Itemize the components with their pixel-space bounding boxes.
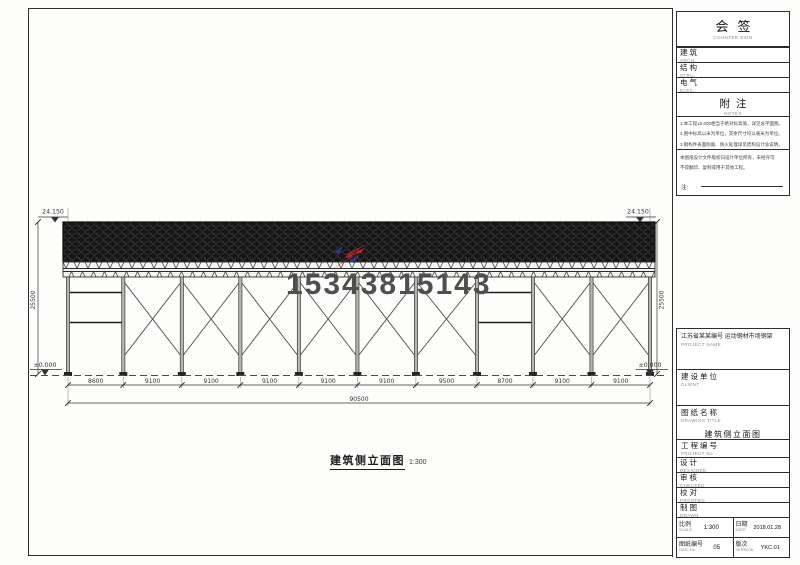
drawing-title: 建筑侧立面图 bbox=[330, 455, 405, 470]
discipline-label: 建筑 bbox=[680, 49, 786, 58]
date-cell: 日期 DATE 2018.01.28 bbox=[733, 518, 790, 537]
role-row-drawn: 制图 DRAWN bbox=[676, 502, 790, 518]
svg-text:25500: 25500 bbox=[659, 290, 666, 309]
column bbox=[122, 277, 125, 374]
svg-text:9100: 9100 bbox=[203, 378, 218, 385]
drawing-scale: 1:300 bbox=[409, 459, 427, 466]
elevation-marker-icon bbox=[51, 217, 59, 223]
note-label: 注: bbox=[681, 183, 688, 191]
scale-sublabel: SCALE bbox=[679, 528, 692, 532]
notes-list-box: 1.本工程±0.000相当于绝对标高值，详见总平面图。 2.图中标高以米为单位，… bbox=[676, 116, 790, 150]
svg-text:9100: 9100 bbox=[145, 378, 160, 385]
project-name-sublabel: PROJECT NAME bbox=[681, 342, 785, 347]
note-line: 2.图中标高以米为单位，其余尺寸均以毫米为单位。 bbox=[680, 129, 786, 139]
svg-text:9500: 9500 bbox=[439, 378, 454, 385]
note-line: 本图纸设计文件版权归设计单位所有，未经许可 bbox=[680, 153, 786, 163]
svg-text:±0.000: ±0.000 bbox=[639, 362, 662, 369]
svg-text:9100: 9100 bbox=[379, 378, 394, 385]
svg-text:24.150: 24.150 bbox=[627, 209, 649, 216]
svg-text:9100: 9100 bbox=[555, 378, 570, 385]
discipline-label: 结构 bbox=[680, 64, 786, 73]
client-sublabel: CLIENT bbox=[681, 382, 785, 387]
svg-text:±0.000: ±0.000 bbox=[34, 362, 57, 369]
dwgno-sublabel: DWG No. bbox=[679, 548, 703, 552]
role-row-proofed: 校对 PROOFED bbox=[676, 487, 790, 503]
scale-date-row: 比例 SCALE 1:300 日期 DATE 2018.01.28 bbox=[676, 517, 790, 538]
notes-header-box: 附注 NOTES bbox=[676, 92, 790, 117]
role-row-checked: 审核 CHECKED bbox=[676, 472, 790, 488]
sign-subtitle: COUNTER SIGN bbox=[677, 35, 789, 40]
svg-text:8600: 8600 bbox=[88, 378, 103, 385]
note-line: 1.本工程±0.000相当于绝对标高值，详见总平面图。 bbox=[680, 119, 786, 129]
drawing-title-box: 图纸名称 DRAWING TITLE 建筑侧立面图 bbox=[676, 405, 790, 440]
drawing-caption: 建筑侧立面图1:300 bbox=[330, 451, 427, 469]
client-box: 建设单位 CLIENT bbox=[676, 369, 790, 406]
sign-box: 会签 COUNTER SIGN bbox=[676, 11, 790, 47]
date-value: 2018.01.28 bbox=[748, 525, 787, 531]
column bbox=[66, 277, 69, 374]
project-name: 江苏省某某编号 运动钢材市场钢架 bbox=[681, 333, 785, 342]
project-number-sublabel: PROJECT No. bbox=[681, 451, 785, 456]
role-label: 校对 bbox=[680, 489, 786, 498]
copyright-box: 本图纸设计文件版权归设计单位所有，未经许可 不得翻印、复制或用于其他工程。 注: bbox=[676, 149, 790, 196]
svg-text:9100: 9100 bbox=[262, 378, 277, 385]
role-label: 设计 bbox=[680, 459, 786, 468]
role-label: 审核 bbox=[680, 474, 786, 483]
client-label: 建设单位 bbox=[681, 373, 785, 382]
discipline-label: 电气 bbox=[680, 79, 786, 88]
drawing-title-sublabel: DRAWING TITLE bbox=[681, 418, 785, 423]
note-line: 不得翻印、复制或用于其他工程。 bbox=[680, 163, 786, 173]
discipline-row-arch: 建筑 ARCH. bbox=[676, 47, 790, 63]
discipline-row-elec: 电气 ELEC. bbox=[676, 77, 790, 93]
scanned-cad-sheet: { "watermark": { "phone": "15343815143",… bbox=[0, 0, 800, 565]
dwgno-version-row: 图纸编号 DWG No. 05 版次 VERSION YKC.01 bbox=[676, 537, 790, 558]
notes-title: 附注 bbox=[677, 96, 789, 111]
watermark-phone-number: 15343815143 bbox=[286, 268, 492, 302]
sign-title: 会签 bbox=[677, 16, 789, 35]
svg-text:24.150: 24.150 bbox=[42, 209, 64, 216]
project-number-label: 工程编号 bbox=[681, 442, 785, 451]
version-cell: 版次 VERSION YKC.01 bbox=[733, 538, 790, 557]
column bbox=[239, 277, 242, 374]
signature-line bbox=[701, 186, 783, 187]
version-value: YKC.01 bbox=[754, 545, 787, 551]
dwgno-value: 05 bbox=[703, 545, 730, 551]
discipline-row-struct: 结构 STRU. bbox=[676, 62, 790, 78]
svg-text:8700: 8700 bbox=[497, 378, 512, 385]
column bbox=[531, 277, 534, 374]
column bbox=[590, 277, 593, 374]
version-sublabel: VERSION bbox=[736, 548, 754, 552]
titleblock-panel: 会签 COUNTER SIGN 建筑 ARCH. 结构 STRU. 电气 ELE… bbox=[672, 8, 795, 557]
scale-value: 1:300 bbox=[692, 525, 730, 531]
role-row-designed: 设计 DESIGNED bbox=[676, 457, 790, 473]
svg-text:25500: 25500 bbox=[30, 290, 37, 309]
drawing-title-label: 图纸名称 bbox=[681, 409, 785, 418]
svg-text:9100: 9100 bbox=[613, 378, 628, 385]
project-name-box: 江苏省某某编号 运动钢材市场钢架 PROJECT NAME bbox=[676, 328, 790, 370]
elevation-marker-icon bbox=[41, 370, 49, 376]
svg-text:9100: 9100 bbox=[320, 378, 335, 385]
dwgno-cell: 图纸编号 DWG No. 05 bbox=[677, 538, 733, 557]
column bbox=[180, 277, 183, 374]
svg-text:90500: 90500 bbox=[349, 396, 368, 403]
project-number-box: 工程编号 PROJECT No. bbox=[676, 439, 790, 458]
scale-cell: 比例 SCALE 1:300 bbox=[677, 518, 733, 537]
role-label: 制图 bbox=[680, 504, 786, 513]
date-sublabel: DATE bbox=[736, 528, 748, 532]
column bbox=[648, 277, 651, 374]
